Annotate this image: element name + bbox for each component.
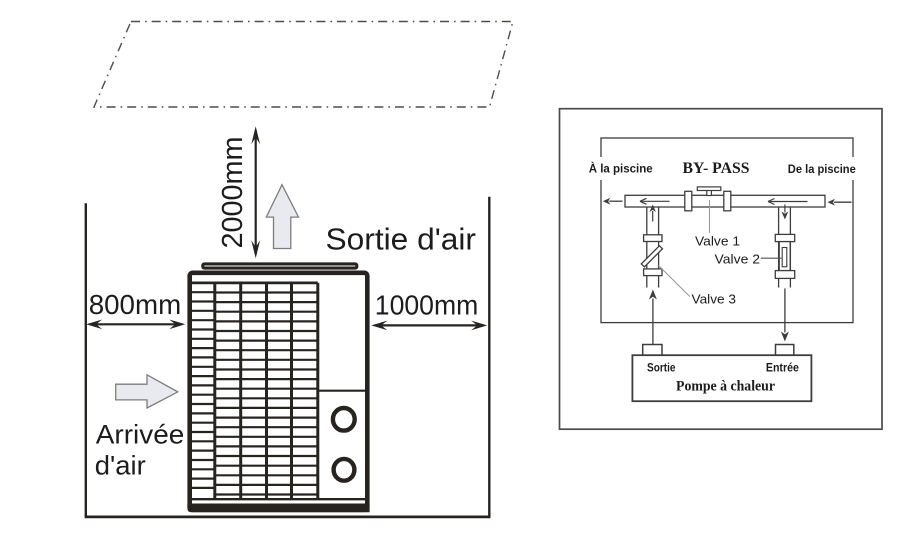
svg-text:BY- PASS: BY- PASS [683,160,750,177]
svg-text:Valve 1: Valve 1 [695,234,740,249]
svg-text:Sortie: Sortie [647,362,676,375]
svg-text:1000mm: 1000mm [375,290,479,321]
svg-text:Valve 2: Valve 2 [715,252,761,267]
svg-text:Arrivée: Arrivée [96,420,185,450]
svg-text:2000mm: 2000mm [217,137,249,249]
svg-text:De la piscine: De la piscine [788,162,856,176]
svg-text:d'air: d'air [95,451,146,481]
svg-text:Entrée: Entrée [766,362,799,375]
svg-text:À la piscine: À la piscine [589,161,653,176]
svg-text:800mm: 800mm [89,289,182,320]
svg-text:Valve 3: Valve 3 [692,292,737,307]
svg-text:Pompe à chaleur: Pompe à chaleur [676,379,776,395]
svg-text:Sortie d'air: Sortie d'air [326,222,477,257]
